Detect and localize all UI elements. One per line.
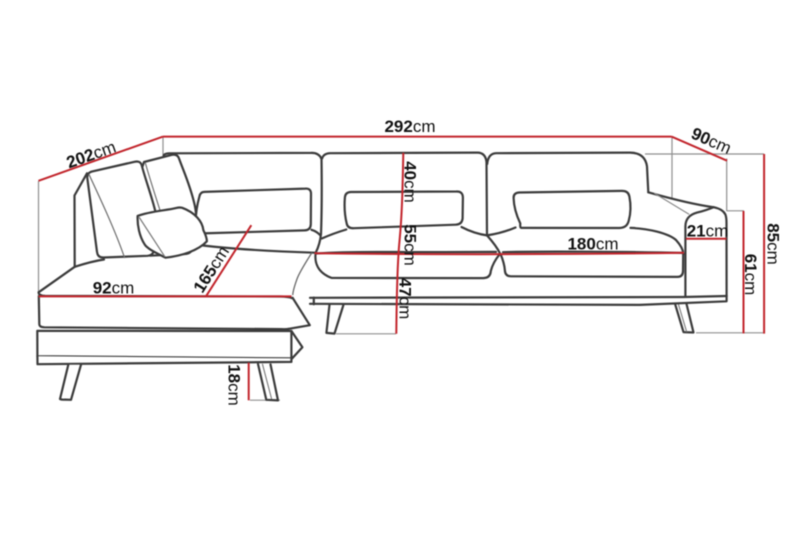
svg-text:292cm: 292cm (384, 117, 435, 136)
svg-text:40cm: 40cm (401, 161, 420, 203)
svg-text:92cm: 92cm (93, 278, 135, 297)
svg-text:55cm: 55cm (401, 224, 420, 266)
svg-text:85cm: 85cm (764, 223, 783, 265)
svg-text:18cm: 18cm (225, 364, 244, 406)
svg-text:47cm: 47cm (396, 278, 415, 320)
svg-text:21cm: 21cm (687, 222, 729, 241)
svg-text:180cm: 180cm (567, 235, 618, 254)
svg-text:61cm: 61cm (741, 254, 760, 296)
